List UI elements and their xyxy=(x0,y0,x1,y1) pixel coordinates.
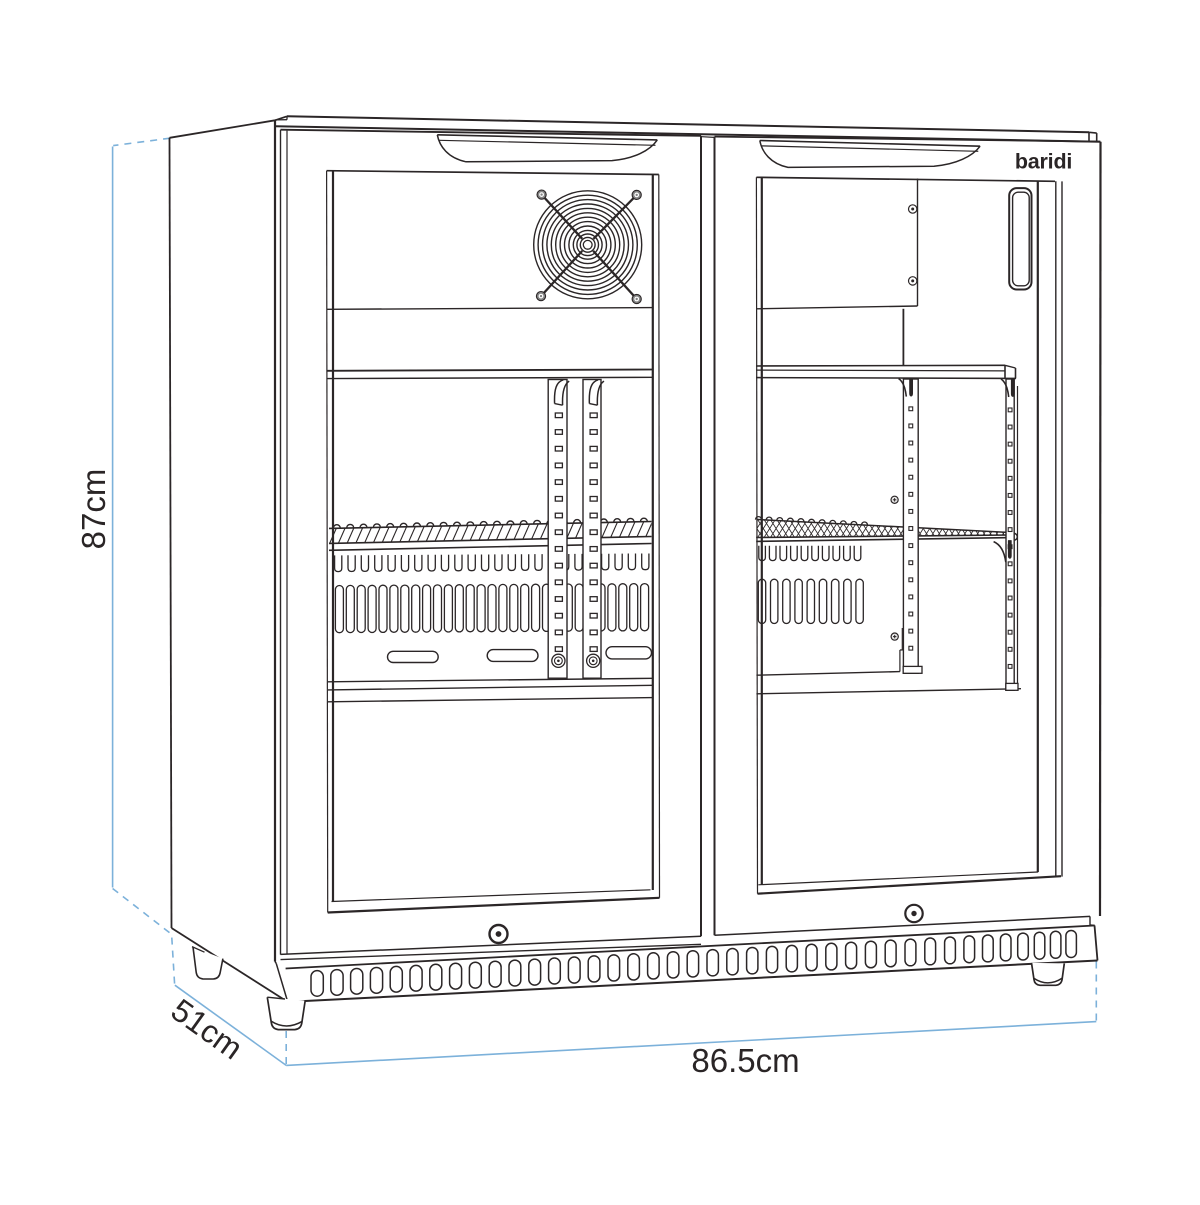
svg-text:baridi: baridi xyxy=(1015,150,1072,174)
svg-text:86.5cm: 86.5cm xyxy=(691,1042,799,1079)
svg-text:87cm: 87cm xyxy=(75,469,112,550)
